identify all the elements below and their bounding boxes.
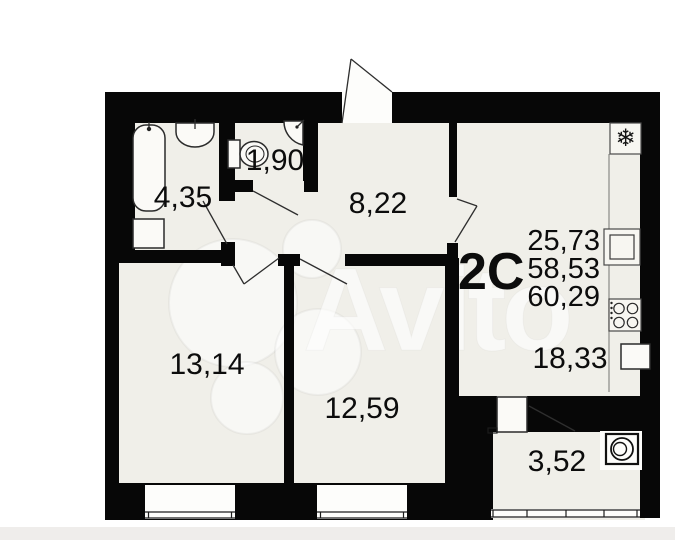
wall-left-upper bbox=[105, 92, 135, 260]
floor-plan-svg: Avito bbox=[0, 0, 675, 540]
room-label-toilet: 1,90 bbox=[246, 144, 304, 177]
wall-bathroom-door-stub bbox=[219, 192, 235, 201]
wall-hall-bottom-right bbox=[345, 254, 447, 266]
stove-knob bbox=[610, 302, 612, 304]
room-label-living2: 12,59 bbox=[324, 392, 399, 425]
wall-bathroom-junction bbox=[221, 242, 235, 266]
wall-top-left bbox=[105, 92, 342, 123]
stove-knob bbox=[610, 317, 612, 319]
wall-kitchen-bottom-left bbox=[445, 396, 497, 432]
window-recess bbox=[317, 485, 407, 512]
room-label-loggia: 3,52 bbox=[528, 445, 586, 478]
balcony-door-block bbox=[497, 397, 527, 432]
stove-knob bbox=[610, 312, 612, 314]
wall-hall-kitchen-upper bbox=[449, 121, 457, 197]
window-room1 bbox=[145, 485, 235, 519]
wall-toilet-bottom-right bbox=[304, 180, 318, 192]
washing-machine bbox=[600, 431, 642, 470]
room-label-kitchen: 18,33 bbox=[532, 342, 607, 375]
toilet-tank bbox=[228, 140, 240, 168]
bathtub-faucet-dot bbox=[147, 127, 151, 131]
room-label-bathroom: 4,35 bbox=[154, 181, 212, 214]
wall-room-divider bbox=[284, 258, 294, 483]
wall-loggia-left bbox=[445, 432, 493, 520]
wall-right bbox=[640, 92, 660, 518]
room-label-living1: 13,14 bbox=[169, 348, 244, 381]
room-label-hallway: 8,22 bbox=[349, 187, 407, 220]
wall-left-lower bbox=[105, 250, 119, 520]
window-loggia bbox=[491, 509, 640, 518]
wall-bathroom-bottom bbox=[105, 250, 233, 263]
page-bottom-strip bbox=[0, 527, 675, 540]
window-room2 bbox=[317, 485, 407, 519]
apartment-type-label: 2С bbox=[458, 243, 524, 301]
fridge-snowflake-icon: ❄ bbox=[615, 125, 635, 152]
stove-knob bbox=[610, 307, 612, 309]
counter-unit-box bbox=[621, 344, 650, 369]
wall-toilet-right bbox=[303, 121, 318, 181]
wall-toilet-bottom-left bbox=[219, 180, 253, 192]
corner-sink-dot bbox=[295, 125, 298, 128]
wall-top-right bbox=[392, 92, 660, 123]
window-recess bbox=[145, 485, 235, 512]
area-summary-line3: 60,29 bbox=[527, 281, 600, 313]
bathroom-niche bbox=[133, 219, 164, 248]
